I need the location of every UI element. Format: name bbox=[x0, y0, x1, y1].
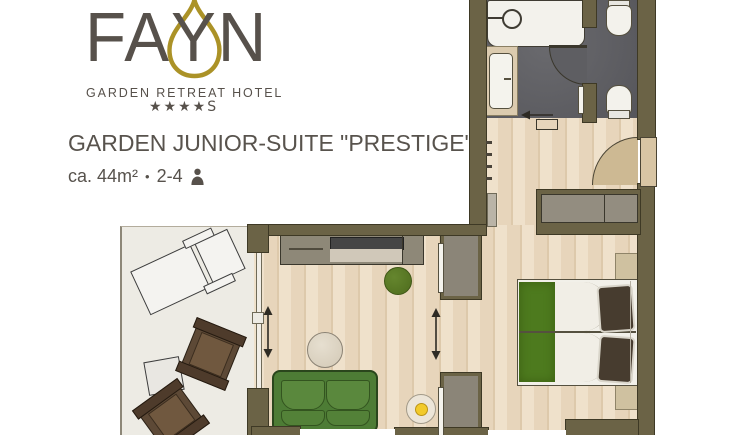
floorplan-page: FAYN GARDEN RETREAT HOTEL ★★★★S GARDEN J… bbox=[0, 0, 754, 435]
tv-sideboard bbox=[280, 234, 424, 265]
window-gap bbox=[300, 429, 395, 435]
wardrobe-divider bbox=[604, 195, 605, 222]
divider-cabinet-bottom bbox=[441, 373, 481, 435]
sink bbox=[489, 53, 513, 109]
window-gap bbox=[488, 430, 566, 435]
hall-mirror bbox=[487, 193, 497, 227]
wall-right-upper bbox=[638, 0, 655, 139]
wall-right-lower bbox=[638, 184, 654, 435]
wall-left-upper bbox=[470, 0, 486, 233]
floor-plan bbox=[0, 0, 754, 435]
coat-hook bbox=[486, 177, 492, 180]
wardrobe bbox=[541, 194, 638, 223]
bathroom-sliding-panel bbox=[578, 86, 584, 114]
wall-bottom-left bbox=[252, 427, 300, 435]
sofa-back-cushion bbox=[326, 410, 370, 426]
sink-faucet bbox=[504, 78, 511, 80]
coffee-table bbox=[307, 332, 343, 368]
bathtub bbox=[487, 0, 585, 47]
sofa bbox=[272, 370, 378, 433]
sliding-door-arrow-vertical bbox=[430, 308, 442, 360]
media-shelf bbox=[330, 249, 402, 262]
divider-sliding-panel-top bbox=[438, 243, 444, 293]
headboard-line bbox=[630, 281, 631, 383]
wall-bath-wc-upper bbox=[583, 0, 596, 27]
coat-hook bbox=[486, 153, 492, 156]
bidet-tank bbox=[608, 110, 630, 119]
bath-threshold bbox=[536, 119, 558, 130]
drawer-handle bbox=[289, 248, 323, 250]
wall-balcony-upper bbox=[248, 225, 268, 252]
toilet bbox=[606, 5, 632, 36]
coat-hook bbox=[486, 165, 492, 168]
entry-door-leaf bbox=[640, 137, 657, 187]
divider-sliding-panel-bottom bbox=[438, 387, 444, 435]
wall-bottom-right bbox=[566, 420, 638, 435]
sofa-seat-cushion bbox=[281, 380, 325, 410]
wall-living-top bbox=[252, 225, 486, 235]
sofa-seat-cushion bbox=[326, 380, 370, 410]
wc-door-leaf bbox=[549, 45, 587, 48]
bathtub-faucet bbox=[502, 9, 522, 29]
floor-lamp bbox=[406, 394, 436, 424]
sliding-door-arrow-vertical bbox=[262, 306, 274, 358]
sideboard-divider bbox=[402, 235, 403, 264]
wall-bath-wc-lower bbox=[583, 84, 596, 122]
divider-cabinet-top bbox=[441, 230, 481, 299]
lamp-bulb bbox=[415, 403, 428, 416]
sofa-back-cushion bbox=[281, 410, 325, 426]
double-bed bbox=[517, 279, 639, 386]
plant-pot bbox=[384, 267, 412, 295]
coat-hook bbox=[486, 141, 492, 144]
